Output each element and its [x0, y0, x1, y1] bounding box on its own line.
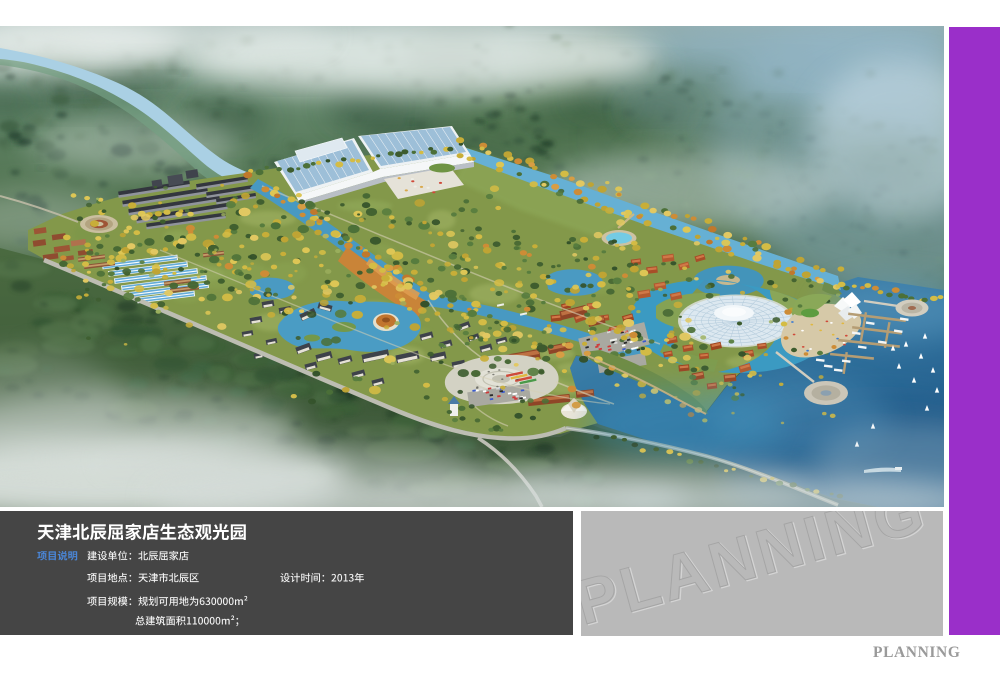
svg-text:PLANNING: PLANNING	[581, 511, 935, 636]
